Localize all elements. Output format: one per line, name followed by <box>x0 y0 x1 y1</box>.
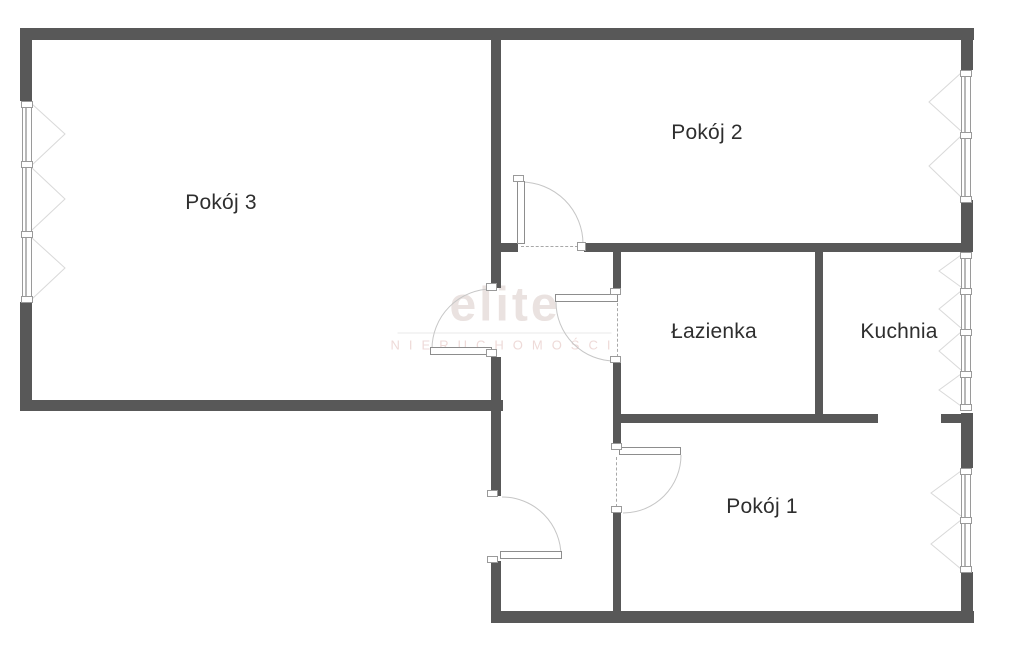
room-label-pokoj-1: Pokój 1 <box>726 495 797 519</box>
wall-segment <box>584 243 961 252</box>
floor-plan: elite NIERUCHOMOŚCI Pokój 3 Pokój 2 Łazi… <box>0 0 1024 652</box>
pokoj-3-door-jamb <box>486 283 497 291</box>
pokoj-1-door-jamb <box>611 506 622 513</box>
pokoj-3-door-leaf <box>430 347 492 355</box>
pokoj-1-door-threshold <box>616 457 617 507</box>
window-mullion <box>960 468 972 475</box>
window-mullion <box>960 329 972 336</box>
wall-segment <box>961 200 973 252</box>
wall-segment <box>501 243 518 252</box>
window-mullion <box>960 566 972 573</box>
window-casement-swing <box>931 520 961 569</box>
watermark-divider-line <box>398 333 612 334</box>
window-casement-swing <box>32 238 65 299</box>
window-casement-swing <box>939 374 961 406</box>
wall-segment <box>20 302 32 411</box>
window-mullion <box>960 132 972 139</box>
wall-segment <box>613 512 621 611</box>
wall-segment <box>491 611 974 623</box>
wall-segment <box>613 361 621 449</box>
window <box>22 101 32 302</box>
window-mullion <box>960 252 972 259</box>
pokoj-2-door-threshold <box>521 246 578 247</box>
window-mullion <box>960 288 972 295</box>
window-glazing <box>25 103 27 300</box>
lazienka-door-jamb <box>610 356 621 363</box>
pokoj-2-door-jamb <box>513 175 524 182</box>
wall-segment <box>961 28 973 70</box>
window-mullion <box>960 70 972 77</box>
entrance-door-swing-arc <box>502 497 561 556</box>
window-casement-swing <box>939 332 961 370</box>
room-label-pokoj-2: Pokój 2 <box>671 121 742 145</box>
lazienka-door-threshold <box>617 303 618 357</box>
window-casement-swing <box>32 104 65 165</box>
window-mullion <box>21 231 33 238</box>
room-label-pokoj-3: Pokój 3 <box>185 191 256 215</box>
window-mullion <box>21 296 33 303</box>
wall-segment <box>961 413 973 468</box>
lazienka-door-leaf <box>555 294 618 302</box>
window-mullion <box>21 161 33 168</box>
pokoj-2-door-jamb <box>577 242 586 251</box>
watermark: elite NIERUCHOMOŚCI <box>391 282 620 353</box>
entrance-door-jamb <box>487 556 498 563</box>
window-mullion <box>960 517 972 524</box>
pokoj-2-door-leaf <box>517 181 525 244</box>
room-label-kuchnia: Kuchnia <box>860 320 937 344</box>
watermark-brand: elite <box>391 282 620 330</box>
wall-segment <box>613 414 878 423</box>
wall-segment <box>815 252 823 415</box>
window-mullion <box>960 371 972 378</box>
window-mullion <box>960 196 972 203</box>
pokoj-2-door-swing-arc <box>521 182 583 244</box>
window-mullion <box>21 101 33 108</box>
wall-segment <box>20 400 503 411</box>
pokoj-1-door-swing-arc <box>623 455 681 513</box>
window-casement-swing <box>931 471 961 516</box>
pokoj-3-door-jamb <box>486 349 497 357</box>
entrance-door-leaf <box>500 551 562 559</box>
wall-segment <box>491 39 501 288</box>
pokoj-1-door-leaf <box>619 447 681 455</box>
window-casement-swing <box>929 136 961 197</box>
wall-segment <box>491 357 501 496</box>
lazienka-door-jamb <box>610 288 621 295</box>
window-casement-swing <box>32 168 65 230</box>
window-mullion <box>960 404 972 411</box>
watermark-subtitle: NIERUCHOMOŚCI <box>391 338 620 353</box>
pokoj-1-door-jamb <box>611 443 622 450</box>
window-casement-swing <box>939 255 961 287</box>
window-casement-swing <box>939 291 961 328</box>
window-casement-swing <box>929 73 961 131</box>
wall-segment <box>20 28 32 101</box>
room-label-lazienka: Łazienka <box>671 320 757 344</box>
entrance-door-jamb <box>487 490 498 497</box>
